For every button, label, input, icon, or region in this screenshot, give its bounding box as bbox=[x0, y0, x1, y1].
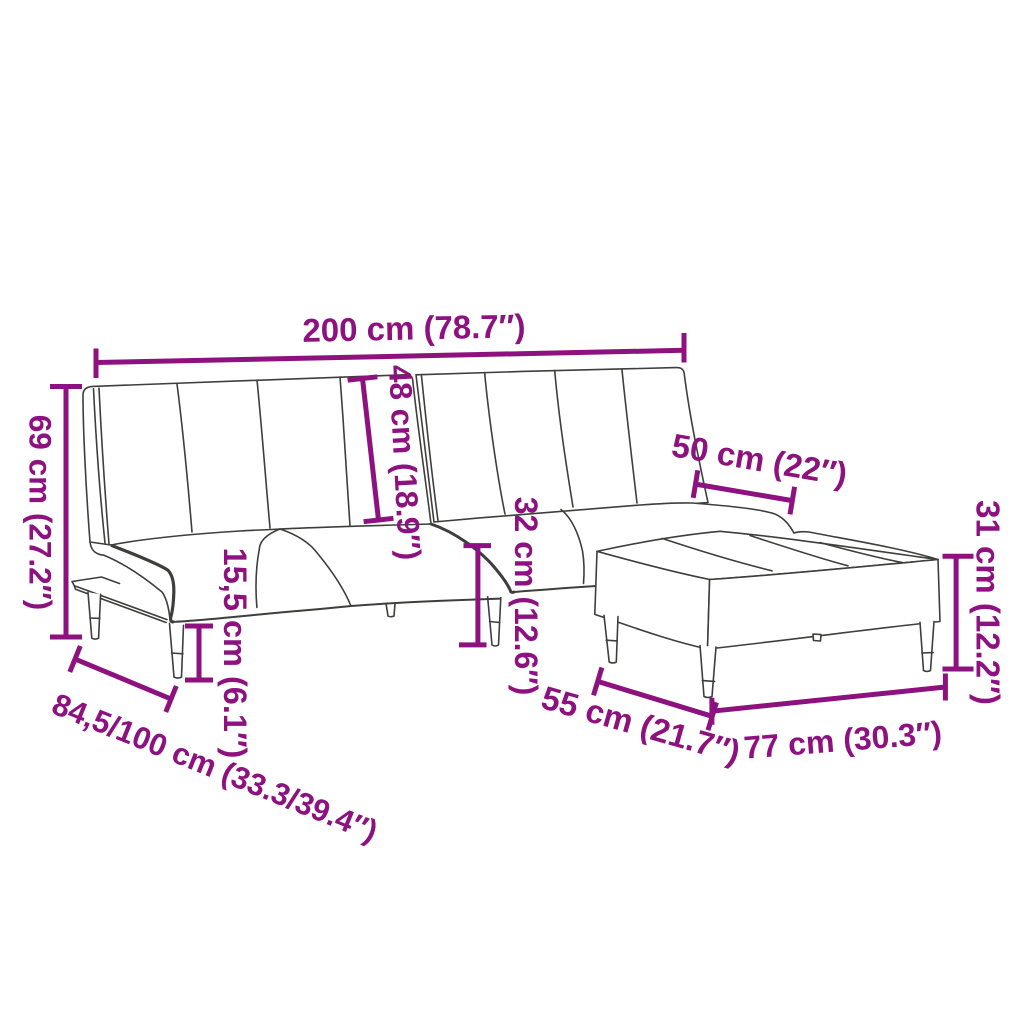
svg-text:32 cm (12.6″): 32 cm (12.6″) bbox=[508, 497, 544, 696]
svg-text:31 cm (12.2″): 31 cm (12.2″) bbox=[970, 500, 1007, 705]
svg-text:15,5 cm (6.1″): 15,5 cm (6.1″) bbox=[217, 548, 253, 759]
svg-text:69 cm (27.2″): 69 cm (27.2″) bbox=[23, 415, 59, 610]
svg-text:200 cm (78.7″): 200 cm (78.7″) bbox=[302, 307, 526, 349]
